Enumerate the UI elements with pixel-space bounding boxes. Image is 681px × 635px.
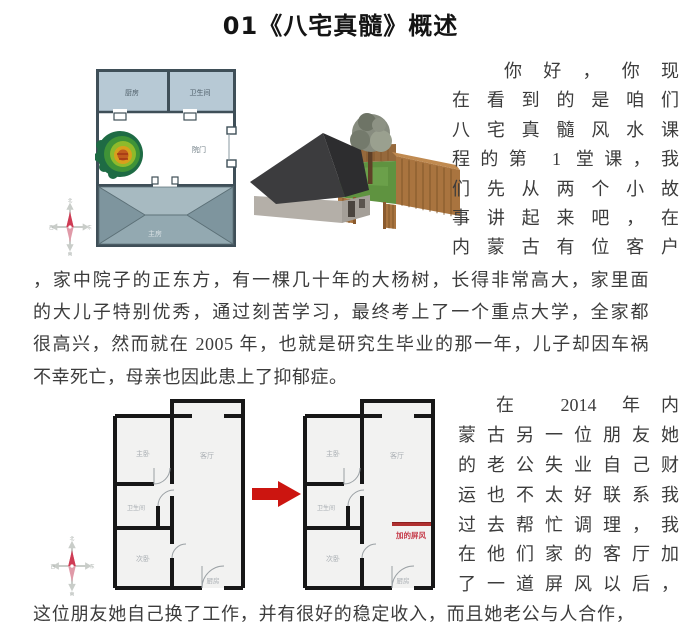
text-line: 的大儿子特别优秀，通过刻苦学习，最终考上了一个重点大学，全家都 [33,296,649,328]
right-fence [392,152,460,216]
document-page: 01《八宅真髓》概述 [0,0,681,635]
compass-icon: 北 南 西 东 [48,198,92,256]
intro-text-column: 你好，你现 在看到的是咱们 八宅真髓风水课 程的第 1 堂课，我 们先从两个小故… [452,57,679,263]
text-line: 内蒙古有位客户 [452,233,679,262]
room-label-living-room: 客厅 [200,451,214,460]
room-label-kitchen: 厨房 [397,576,410,585]
second-story-text-column: 在 2014 年内 蒙古另一位朋友她 的老公失业自己财 运也不太好联系我 过去帮… [458,391,679,600]
text-line: 在 2014 年内 [458,391,679,421]
closing-text-line: 这位朋友她自己换了工作，并有很好的稳定收入，而且她老公与人合作， [33,601,677,627]
main-room-label: 主房 [148,229,162,238]
room-label-second-bedroom: 次卧 [136,554,150,563]
compass-icon: 北 南 西 东 [48,536,96,596]
room-label-master-bedroom: 主卧 [136,449,150,458]
text-line: 在看到的是咱们 [452,86,679,115]
text-line: 八宅真髓风水课 [452,116,679,145]
house-3d-image [248,98,462,256]
compass-label-south: 南 [68,251,73,256]
compass-label-west: 西 [50,564,55,570]
text-line: 过去帮忙调理，我 [458,511,679,541]
gate-post-right [383,202,386,229]
room-label-bathroom: 卫生间 [317,504,335,512]
page-title: 01《八宅真髓》概述 [0,6,681,41]
room-label-top-left: 厨房 [125,88,139,97]
compass-label-east: 东 [90,563,95,569]
tree-icon [95,131,143,179]
arrow-right-icon [252,478,302,510]
main-house-roof [99,187,233,244]
courtyard-floor-plan-image: 厨房 卫生间 院门 主房 [95,68,237,248]
text-line: 了一道屏风以后， [458,570,679,600]
room-label-second-bedroom: 次卧 [326,554,340,563]
apartment-plan-before-image: 主卧 客厅 卫生间 次卧 厨房 [112,396,247,592]
apartment-plan-after-image: 加的屏风 主卧 客厅 卫生间 次卧 厨房 [302,396,437,592]
screen-annotation: 加的屏风 [395,530,426,540]
courtyard-gate [227,127,237,167]
room-label-master-bedroom: 主卧 [326,449,340,458]
room-label-kitchen: 厨房 [207,576,220,585]
compass-label-east: 东 [87,224,92,230]
text-line: 蒙古另一位朋友她 [458,421,679,451]
text-line: 事讲起来吧，在 [452,204,679,233]
text-line: 你好，你现 [452,57,679,86]
compass-needle [68,550,76,582]
text-line: 程的第 1 堂课，我 [452,145,679,174]
gate-label: 院门 [192,145,206,154]
compass-label-west: 西 [49,225,54,231]
story-paragraph: ，家中院子的正东方，有一棵几十年的大杨树，长得非常高大，家里面 的大儿子特别优秀… [33,264,649,393]
house-door [348,201,355,217]
room-label-bathroom: 卫生间 [127,504,145,512]
compass-needle [66,212,73,243]
top-rooms [99,72,233,112]
room-label-living-room: 客厅 [390,451,404,460]
text-line: ，家中院子的正东方，有一棵几十年的大杨树，长得非常高大，家里面 [33,264,649,296]
text-line: 在他们家的客厅加 [458,540,679,570]
text-line: 们先从两个小故 [452,175,679,204]
text-line: 不幸死亡，母亲也因此患上了抑郁症。 [33,361,649,393]
house-window [359,199,365,208]
compass-label-south: 南 [70,591,75,596]
house-structure [250,133,370,223]
room-label-top-right: 卫生间 [190,88,211,97]
text-line: 运也不太好联系我 [458,481,679,511]
text-line: 很高兴，然而就在 2005 年，也就是研究生毕业的那一年，儿子却因车祸 [33,328,649,360]
text-line: 的老公失业自己财 [458,451,679,481]
